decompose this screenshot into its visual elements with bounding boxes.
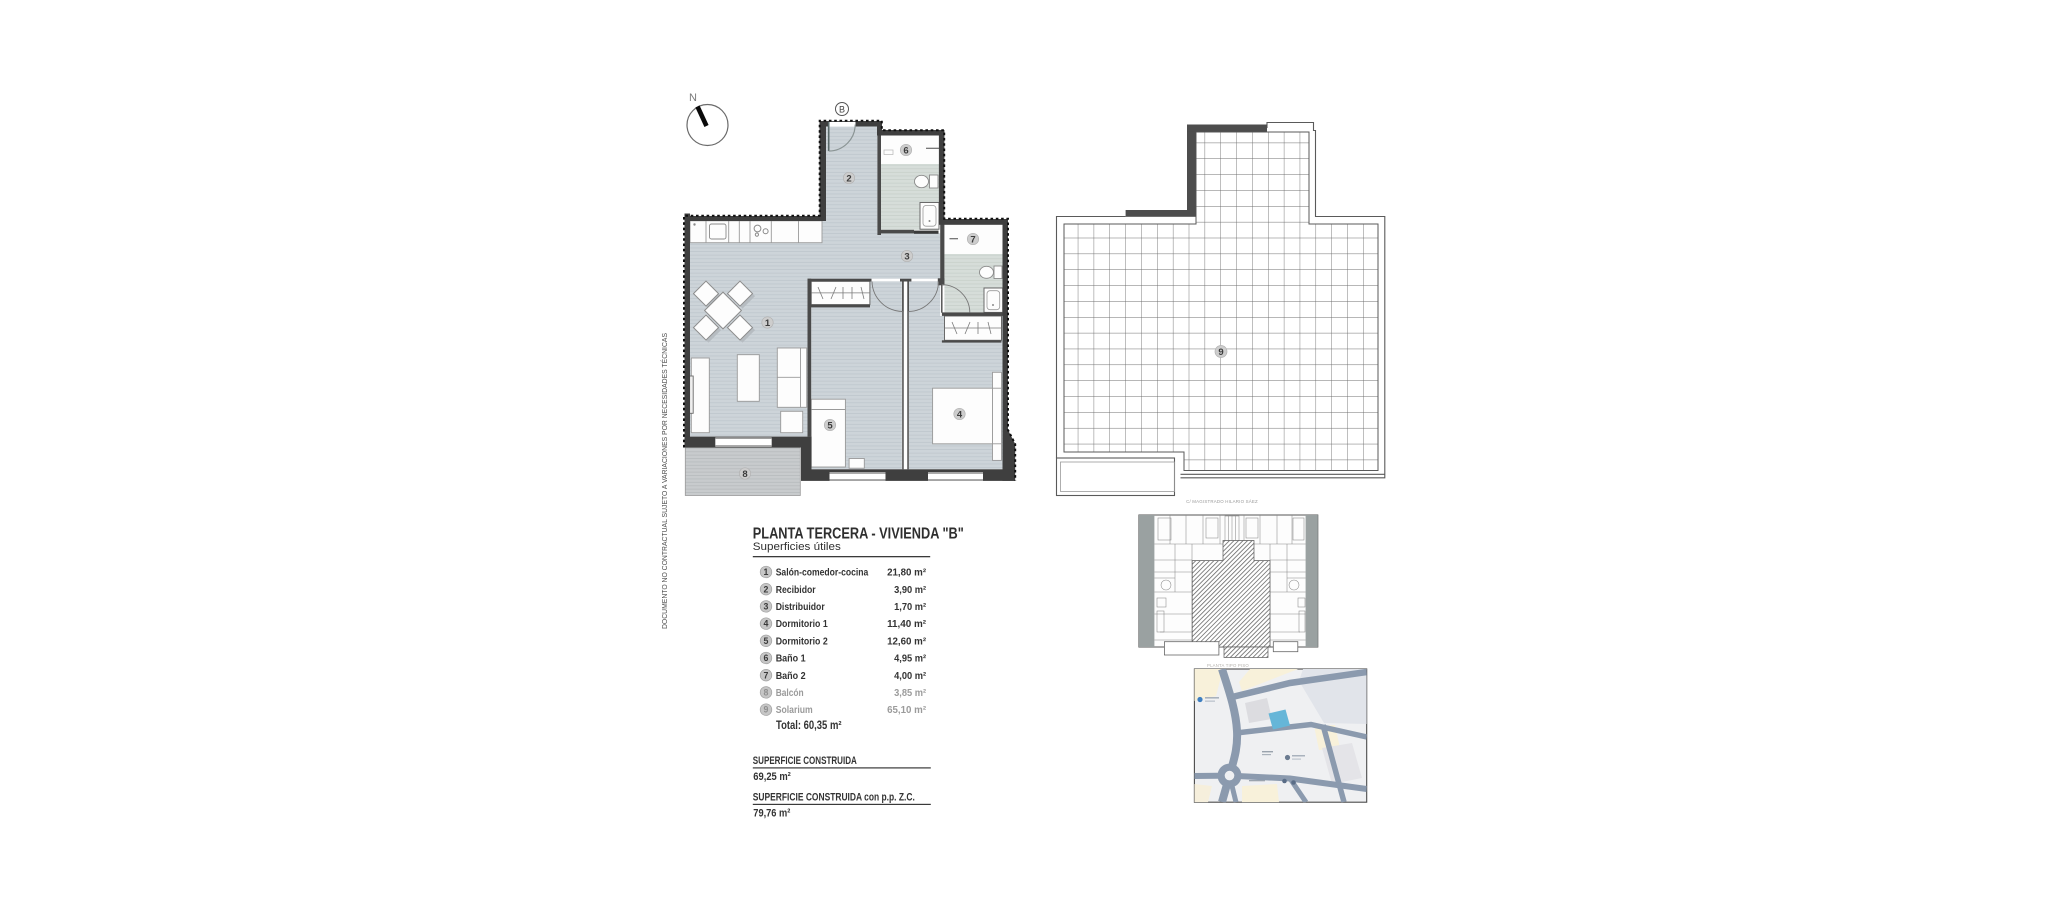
svg-text:Dormitorio 2: Dormitorio 2 xyxy=(776,636,828,647)
svg-text:5: 5 xyxy=(764,636,769,646)
svg-text:Superficies útiles: Superficies útiles xyxy=(753,541,842,553)
svg-text:69,25 m²: 69,25 m² xyxy=(753,771,791,783)
svg-text:7: 7 xyxy=(764,670,769,680)
svg-text:6: 6 xyxy=(903,145,908,156)
svg-text:Baño 2: Baño 2 xyxy=(776,671,806,682)
svg-text:79,76 m²: 79,76 m² xyxy=(753,808,790,820)
svg-text:SUPERFICIE CONSTRUIDA con p.p.: SUPERFICIE CONSTRUIDA con p.p. Z.C. xyxy=(753,792,915,804)
svg-text:9: 9 xyxy=(764,705,769,715)
svg-text:11,40 m²: 11,40 m² xyxy=(887,619,927,630)
svg-text:Total: 60,35 m²: Total: 60,35 m² xyxy=(776,720,842,732)
svg-text:C/ MAGISTRADO HILARIO SÁEZ: C/ MAGISTRADO HILARIO SÁEZ xyxy=(1186,499,1258,504)
svg-text:2: 2 xyxy=(764,584,769,594)
svg-text:1: 1 xyxy=(765,318,771,329)
svg-text:3: 3 xyxy=(764,602,769,612)
svg-text:3,85 m²: 3,85 m² xyxy=(894,688,927,699)
svg-text:7: 7 xyxy=(970,234,975,245)
svg-text:65,10 m²: 65,10 m² xyxy=(887,705,927,716)
svg-text:Salón-comedor-cocina: Salón-comedor-cocina xyxy=(776,568,869,579)
svg-text:1: 1 xyxy=(764,567,769,577)
svg-text:DOCUMENTO NO CONTRACTUAL SUJET: DOCUMENTO NO CONTRACTUAL SUJETO A VARIAC… xyxy=(660,333,669,629)
svg-text:5: 5 xyxy=(827,420,833,431)
svg-text:Distribuidor: Distribuidor xyxy=(776,602,825,613)
svg-text:Recibidor: Recibidor xyxy=(776,585,816,596)
svg-text:Solarium: Solarium xyxy=(776,705,813,716)
svg-text:8: 8 xyxy=(764,688,769,698)
svg-text:12,60 m²: 12,60 m² xyxy=(887,636,927,647)
svg-text:SUPERFICIE CONSTRUIDA: SUPERFICIE CONSTRUIDA xyxy=(753,755,857,767)
svg-text:Balcón: Balcón xyxy=(776,688,804,699)
svg-text:4: 4 xyxy=(957,409,963,420)
svg-text:Baño 1: Baño 1 xyxy=(776,654,806,665)
svg-text:Dormitorio 1: Dormitorio 1 xyxy=(776,619,828,630)
svg-text:1,70 m²: 1,70 m² xyxy=(894,602,927,613)
svg-text:4,00 m²: 4,00 m² xyxy=(894,671,927,682)
svg-text:PLANTA TERCERA - VIVIENDA "B": PLANTA TERCERA - VIVIENDA "B" xyxy=(753,526,964,543)
svg-text:B: B xyxy=(839,105,845,115)
svg-text:2: 2 xyxy=(846,173,851,184)
svg-text:9: 9 xyxy=(1218,347,1223,358)
svg-text:8: 8 xyxy=(742,469,747,480)
svg-text:PLANTA TIPO PISO: PLANTA TIPO PISO xyxy=(1207,663,1249,668)
svg-text:4,95 m²: 4,95 m² xyxy=(894,654,927,665)
svg-text:4: 4 xyxy=(764,619,769,629)
svg-text:N: N xyxy=(689,92,697,104)
svg-text:3,90 m²: 3,90 m² xyxy=(894,585,927,596)
svg-text:21,80 m²: 21,80 m² xyxy=(887,568,927,579)
svg-text:3: 3 xyxy=(904,251,909,262)
svg-text:6: 6 xyxy=(764,653,769,663)
